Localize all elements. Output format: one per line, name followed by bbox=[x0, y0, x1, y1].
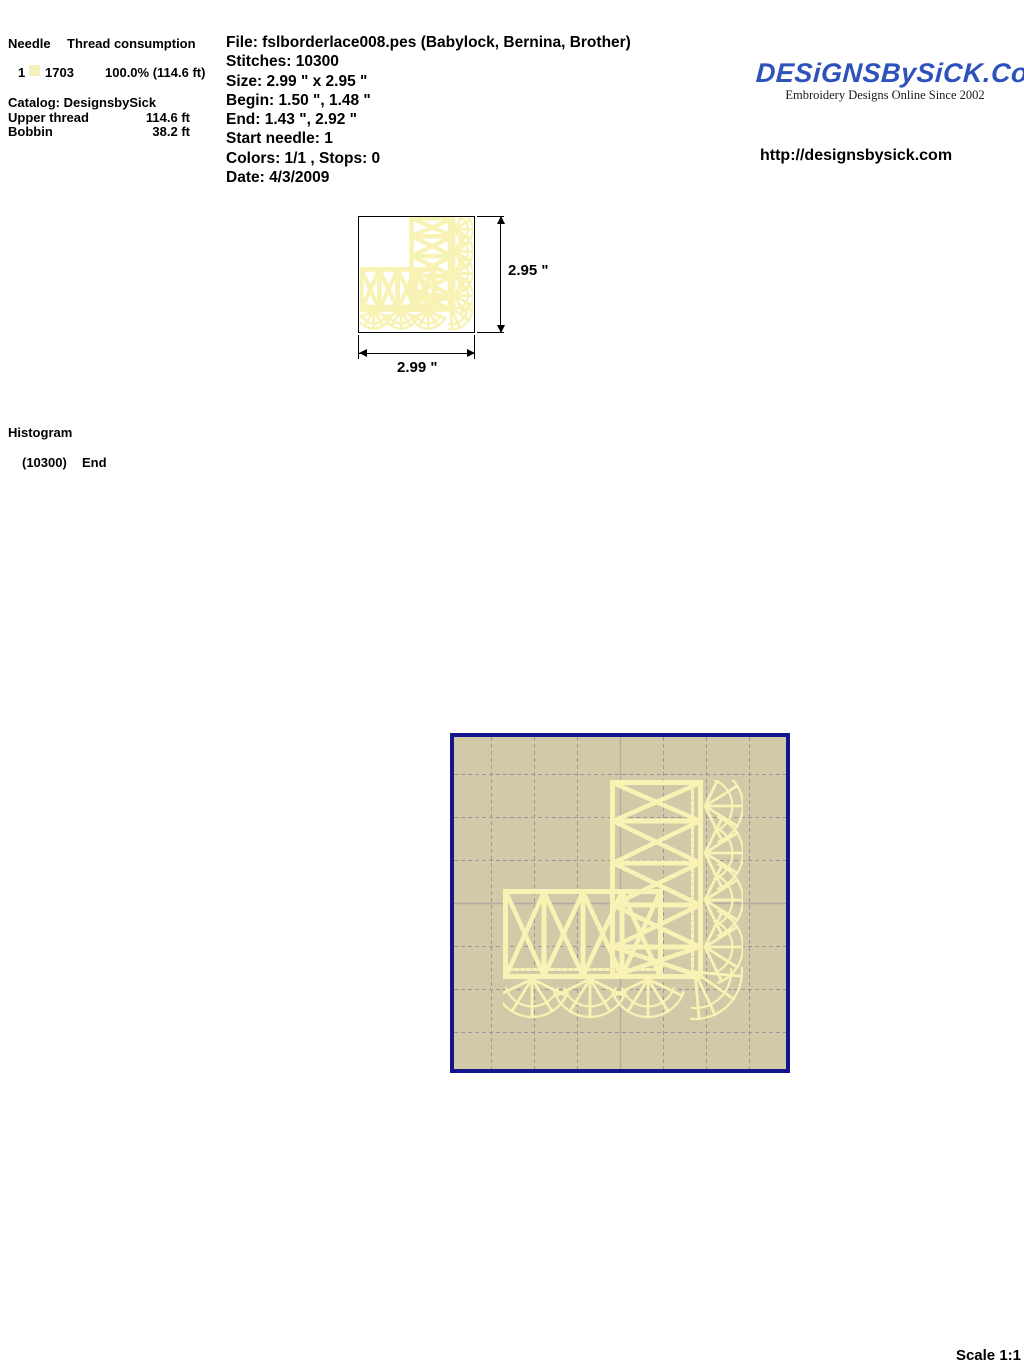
thread-consumption-panel: Needle Thread consumption 1 1703 100.0% … bbox=[8, 36, 220, 146]
size-line: Size: 2.99 " x 2.95 " bbox=[226, 72, 746, 91]
histogram-entry-label: End bbox=[82, 455, 107, 470]
end-line: End: 1.43 ", 2.92 " bbox=[226, 110, 746, 129]
thread-usage-value: 100.0% (114.6 ft) bbox=[105, 65, 205, 80]
width-dimension-line bbox=[359, 353, 474, 354]
height-dimension-line bbox=[500, 217, 501, 332]
colors-stops-line: Colors: 1/1 , Stops: 0 bbox=[226, 149, 746, 168]
arrow-down-icon bbox=[497, 325, 505, 333]
needle-number: 1 bbox=[18, 65, 25, 80]
start-needle-line: Start needle: 1 bbox=[226, 129, 746, 148]
stitch-preview-panel bbox=[450, 733, 790, 1073]
designsbysick-logo: DESiGNSBySiCK.CoM bbox=[755, 58, 1015, 89]
brand-tagline: Embroidery Designs Online Since 2002 bbox=[756, 88, 1014, 103]
thread-color-code: 1703 bbox=[45, 65, 74, 80]
catalog-line: Catalog: DesignsbySick bbox=[8, 95, 156, 110]
upper-thread-label: Upper thread bbox=[8, 110, 89, 125]
thread-color-swatch bbox=[29, 65, 40, 76]
thread-consumption-header: Thread consumption bbox=[67, 36, 196, 51]
begin-line: Begin: 1.50 ", 1.48 " bbox=[226, 91, 746, 110]
scale-label: Scale 1:1 bbox=[945, 1347, 1021, 1364]
histogram-entry-count: (10300) bbox=[22, 455, 67, 470]
arrow-left-icon bbox=[359, 349, 367, 357]
needle-column-header: Needle bbox=[8, 36, 51, 51]
arrow-right-icon bbox=[467, 349, 475, 357]
website-url: http://designsbysick.com bbox=[760, 147, 952, 165]
bobbin-value: 38.2 ft bbox=[108, 124, 190, 139]
stitch-preview-canvas bbox=[454, 737, 786, 1069]
file-info-block: File: fslborderlace008.pes (Babylock, Be… bbox=[226, 33, 746, 187]
design-thumbnail-box bbox=[358, 216, 475, 333]
upper-thread-value: 114.6 ft bbox=[108, 110, 190, 125]
height-dimension-label: 2.95 " bbox=[508, 262, 548, 279]
bobbin-label: Bobbin bbox=[8, 124, 53, 139]
width-dimension-label: 2.99 " bbox=[397, 359, 437, 376]
lace-design bbox=[496, 770, 743, 1019]
stitches-line: Stitches: 10300 bbox=[226, 52, 746, 71]
arrow-up-icon bbox=[497, 216, 505, 224]
design-thumbnail-image bbox=[360, 217, 473, 330]
histogram-title: Histogram bbox=[8, 425, 72, 440]
date-line: Date: 4/3/2009 bbox=[226, 168, 746, 187]
file-name-line: File: fslborderlace008.pes (Babylock, Be… bbox=[226, 33, 746, 52]
